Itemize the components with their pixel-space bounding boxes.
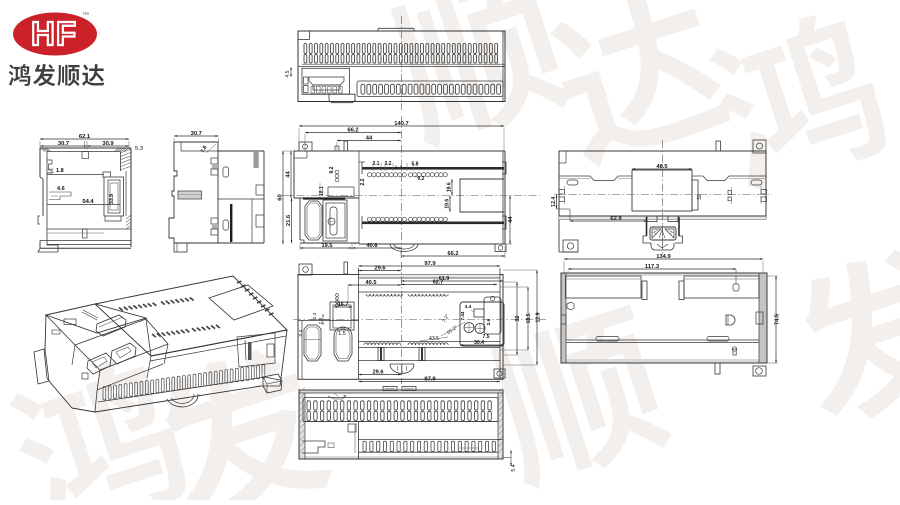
svg-text:92: 92	[515, 316, 521, 322]
svg-text:40.6: 40.6	[367, 243, 378, 249]
svg-text:12.9: 12.9	[535, 312, 541, 322]
svg-text:2.4: 2.4	[312, 312, 318, 319]
svg-text:54.4: 54.4	[82, 199, 94, 205]
svg-text:5.4: 5.4	[511, 464, 517, 471]
svg-text:3.2: 3.2	[385, 161, 392, 167]
svg-text:7.44: 7.44	[460, 311, 465, 320]
svg-text:62.9: 62.9	[610, 216, 622, 222]
svg-text:44: 44	[286, 171, 292, 178]
svg-text:5.3: 5.3	[135, 146, 143, 152]
svg-text:16.7: 16.7	[338, 302, 349, 308]
svg-text:2.6: 2.6	[486, 318, 491, 325]
svg-text:1.8: 1.8	[56, 168, 64, 174]
svg-text:33.9: 33.9	[109, 194, 115, 204]
svg-text:62.7: 62.7	[433, 279, 444, 285]
svg-text:62.1: 62.1	[79, 134, 91, 140]
svg-text:0.2: 0.2	[418, 176, 425, 182]
svg-text:21.6: 21.6	[286, 214, 292, 226]
svg-text:HF: HF	[31, 15, 77, 52]
svg-text:9.2: 9.2	[329, 166, 335, 173]
svg-text:19.6: 19.6	[445, 199, 451, 209]
svg-text:4.5: 4.5	[285, 70, 291, 77]
svg-text:12.4: 12.4	[551, 197, 557, 207]
svg-text:32: 32	[697, 194, 703, 200]
svg-text:5.8: 5.8	[412, 162, 419, 168]
svg-text:66.2: 66.2	[347, 127, 358, 133]
svg-text:30.7: 30.7	[191, 131, 202, 137]
svg-text:44: 44	[366, 135, 373, 141]
svg-text:29.6: 29.6	[373, 369, 384, 375]
svg-text:97.9: 97.9	[424, 261, 436, 267]
svg-text:40.5: 40.5	[366, 280, 377, 286]
svg-text:44: 44	[508, 216, 514, 223]
svg-text:30.7: 30.7	[58, 141, 69, 147]
svg-text:18.5: 18.5	[526, 313, 532, 323]
svg-text:134.9: 134.9	[656, 254, 671, 260]
svg-text:97.9: 97.9	[424, 376, 436, 382]
svg-text:™: ™	[82, 12, 89, 19]
svg-text:30.4: 30.4	[474, 340, 484, 346]
svg-text:1.5: 1.5	[338, 331, 345, 337]
svg-text:2.1: 2.1	[373, 161, 380, 167]
svg-text:30.9: 30.9	[102, 141, 114, 147]
svg-text:3.4: 3.4	[465, 304, 472, 310]
svg-text:74.5: 74.5	[775, 313, 781, 325]
svg-text:0.4: 0.4	[298, 329, 304, 336]
svg-text:48.5: 48.5	[656, 164, 668, 170]
svg-text:29.6: 29.6	[374, 265, 386, 271]
svg-text:2.2: 2.2	[360, 178, 366, 185]
svg-text:19.6: 19.6	[447, 182, 453, 192]
svg-text:66.2: 66.2	[448, 251, 459, 257]
svg-text:117.3: 117.3	[645, 264, 660, 270]
svg-text:4.6: 4.6	[57, 186, 65, 192]
svg-text:19.5: 19.5	[322, 243, 333, 249]
